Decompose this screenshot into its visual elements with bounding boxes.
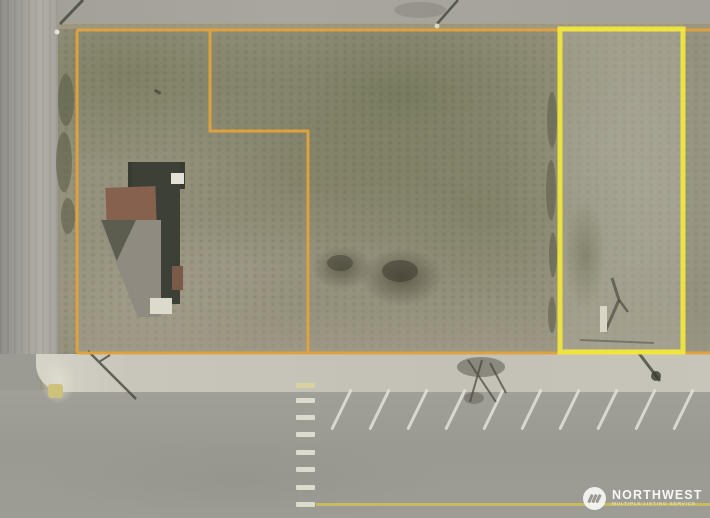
nwmls-triple-slash-icon [583, 487, 606, 510]
pole-shadows [60, 0, 660, 399]
watermark-brand: NORTHWEST [612, 489, 702, 502]
bare-tree [457, 357, 506, 404]
shrub [651, 371, 661, 381]
pole-base [435, 24, 440, 29]
primary-parcel-outline [77, 30, 710, 353]
ground-debris [154, 89, 162, 95]
highlight-parcel-objects [580, 278, 654, 343]
watermark-tagline: MULTIPLE LISTING SERVICE [612, 503, 702, 508]
aerial-photo: NORTHWEST MULTIPLE LISTING SERVICE [0, 0, 710, 518]
white-post [600, 306, 607, 332]
west-vegetation-strip [56, 74, 75, 234]
nwmls-watermark: NORTHWEST MULTIPLE LISTING SERVICE [583, 483, 707, 513]
survey-marker [55, 30, 60, 35]
pavement-stain [394, 2, 446, 18]
east-fence-line [546, 92, 557, 333]
map-overlay-layer [0, 0, 710, 518]
